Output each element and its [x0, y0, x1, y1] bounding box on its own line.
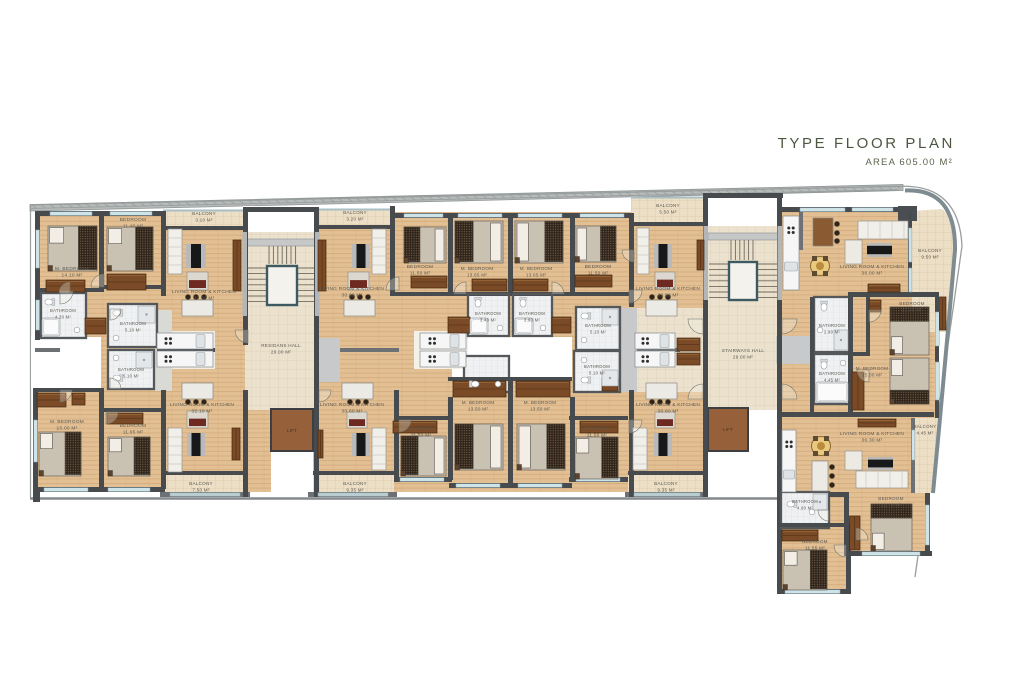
svg-text:LIFT: LIFT: [723, 427, 733, 432]
svg-text:M. BEDROOM: M. BEDROOM: [520, 266, 553, 271]
svg-text:M. BEDROOM: M. BEDROOM: [55, 266, 89, 272]
svg-text:BALCONY: BALCONY: [343, 481, 367, 486]
svg-text:30.60 M²: 30.60 M²: [658, 409, 679, 415]
svg-text:BATHROOM: BATHROOM: [50, 308, 76, 313]
svg-text:LIVING ROOM & KITCHEN: LIVING ROOM & KITCHEN: [172, 289, 236, 295]
svg-text:13.65 M²: 13.65 M²: [526, 273, 546, 278]
svg-text:BALCONY: BALCONY: [189, 481, 213, 486]
svg-text:11.50 M²: 11.50 M²: [587, 433, 608, 439]
svg-text:5.10 M²: 5.10 M²: [590, 330, 606, 335]
svg-text:11.50 M²: 11.50 M²: [588, 271, 609, 277]
svg-text:BATHROOM: BATHROOM: [118, 367, 144, 372]
svg-text:15.00 M²: 15.00 M²: [862, 373, 882, 378]
svg-text:BALCONY: BALCONY: [343, 210, 367, 215]
svg-text:4.45 M²: 4.45 M²: [824, 378, 840, 383]
svg-text:4.30 M²: 4.30 M²: [55, 315, 71, 320]
svg-text:11.50 M²: 11.50 M²: [410, 271, 431, 277]
svg-text:3.10 M²: 3.10 M²: [195, 218, 213, 223]
svg-text:BATHROOM: BATHROOM: [819, 323, 845, 328]
svg-text:BEDROOM: BEDROOM: [120, 423, 147, 429]
svg-text:11.95 M²: 11.95 M²: [123, 430, 144, 436]
svg-text:AREA 605.00 M²: AREA 605.00 M²: [865, 157, 953, 168]
svg-text:7.50 M²: 7.50 M²: [192, 488, 210, 493]
svg-text:BEDROOM: BEDROOM: [408, 426, 435, 432]
svg-text:BATHROOM: BATHROOM: [475, 311, 501, 316]
svg-text:LIVING ROOM & KITCHEN: LIVING ROOM & KITCHEN: [840, 431, 904, 437]
svg-text:LIVING ROOM & KITCHEN: LIVING ROOM & KITCHEN: [636, 402, 700, 408]
svg-text:9.35 M²: 9.35 M²: [657, 488, 675, 493]
svg-text:M. BEDROOM: M. BEDROOM: [50, 419, 84, 425]
svg-text:BEDROOM: BEDROOM: [899, 301, 925, 306]
svg-text:BEDROOM: BEDROOM: [585, 264, 612, 270]
svg-text:BEDROOM: BEDROOM: [802, 539, 828, 544]
svg-text:STAIRWAYS HALL: STAIRWAYS HALL: [722, 348, 765, 353]
svg-text:BALCONY: BALCONY: [192, 211, 216, 216]
svg-text:LIVING ROOM & KITCHEN: LIVING ROOM & KITCHEN: [840, 264, 904, 270]
svg-text:BATHROOM: BATHROOM: [120, 321, 146, 326]
svg-text:BATHROOM: BATHROOM: [585, 323, 611, 328]
svg-text:LIVING ROOM & KITCHEN: LIVING ROOM & KITCHEN: [320, 402, 384, 408]
svg-text:4.45 M²: 4.45 M²: [917, 431, 934, 436]
svg-text:3.40 M²: 3.40 M²: [480, 318, 496, 323]
svg-text:LIVING ROOM & KITCHEN: LIVING ROOM & KITCHEN: [320, 286, 384, 292]
svg-text:BEDROOM: BEDROOM: [584, 426, 611, 432]
svg-text:BATHROOM: BATHROOM: [819, 371, 845, 376]
svg-text:12.70 M²: 12.70 M²: [881, 503, 901, 508]
svg-text:BEDROOM: BEDROOM: [878, 496, 904, 501]
svg-text:BALCONY: BALCONY: [918, 248, 942, 253]
svg-text:3.20 M²: 3.20 M²: [346, 217, 364, 222]
svg-text:5.50 M²: 5.50 M²: [659, 210, 677, 215]
svg-text:9.50 M²: 9.50 M²: [921, 255, 939, 260]
svg-text:14.10 M²: 14.10 M²: [62, 273, 83, 279]
svg-text:LIFT: LIFT: [287, 428, 297, 433]
svg-text:BATHROOM: BATHROOM: [792, 499, 818, 504]
svg-text:30.50 M²: 30.50 M²: [658, 293, 679, 299]
svg-text:M. BEDROOM: M. BEDROOM: [461, 266, 494, 271]
svg-text:RESIDANS HALL: RESIDANS HALL: [261, 343, 301, 348]
svg-text:M. BEDROOM: M. BEDROOM: [524, 400, 557, 405]
svg-text:M. BEDROOM: M. BEDROOM: [856, 366, 889, 371]
svg-text:3.90 M²: 3.90 M²: [524, 318, 540, 323]
svg-text:30.60 M²: 30.60 M²: [194, 296, 215, 302]
svg-text:BALCONY: BALCONY: [914, 424, 937, 429]
svg-text:BALCONY: BALCONY: [656, 203, 680, 208]
svg-text:32.10 M²: 32.10 M²: [192, 409, 213, 415]
svg-text:9.35 M²: 9.35 M²: [346, 488, 364, 493]
svg-text:BEDROOM: BEDROOM: [407, 264, 434, 270]
svg-text:5.10 M²: 5.10 M²: [125, 328, 141, 333]
svg-text:12.05 M²: 12.05 M²: [902, 308, 922, 313]
svg-text:2.90 M²: 2.90 M²: [824, 330, 840, 335]
svg-text:11.55 M²: 11.55 M²: [805, 546, 825, 551]
svg-text:15.00 M²: 15.00 M²: [57, 426, 78, 432]
svg-text:4.90 M²: 4.90 M²: [797, 506, 813, 511]
svg-text:36.30 M²: 36.30 M²: [862, 438, 883, 444]
svg-text:13.50 M²: 13.50 M²: [530, 407, 550, 412]
svg-text:TYPE FLOOR PLAN: TYPE FLOOR PLAN: [778, 135, 955, 152]
svg-text:BATHROOM: BATHROOM: [584, 364, 610, 369]
svg-text:LIVING ROOM & KITCHEN: LIVING ROOM & KITCHEN: [170, 402, 234, 408]
svg-text:M. BEDROOM: M. BEDROOM: [462, 400, 495, 405]
svg-text:BEDROOM: BEDROOM: [120, 217, 147, 223]
svg-text:36.00 M²: 36.00 M²: [862, 271, 883, 277]
svg-text:11.40 M²: 11.40 M²: [123, 224, 144, 230]
svg-text:BATHROOM: BATHROOM: [519, 311, 545, 316]
svg-text:29.00 M²: 29.00 M²: [733, 355, 753, 360]
svg-text:5.10 M²: 5.10 M²: [589, 371, 605, 376]
svg-text:11.50 M²: 11.50 M²: [411, 433, 432, 439]
svg-text:LIVING ROOM & KITCHEN: LIVING ROOM & KITCHEN: [636, 286, 700, 292]
svg-text:30.60 M²: 30.60 M²: [342, 409, 363, 415]
svg-text:29.00 M²: 29.00 M²: [271, 350, 291, 355]
svg-text:13.65 M²: 13.65 M²: [467, 273, 487, 278]
svg-text:5.10 M²: 5.10 M²: [123, 374, 139, 379]
svg-text:BALCONY: BALCONY: [654, 481, 678, 486]
svg-text:13.50 M²: 13.50 M²: [468, 407, 488, 412]
svg-text:30.60 M²: 30.60 M²: [342, 293, 363, 299]
